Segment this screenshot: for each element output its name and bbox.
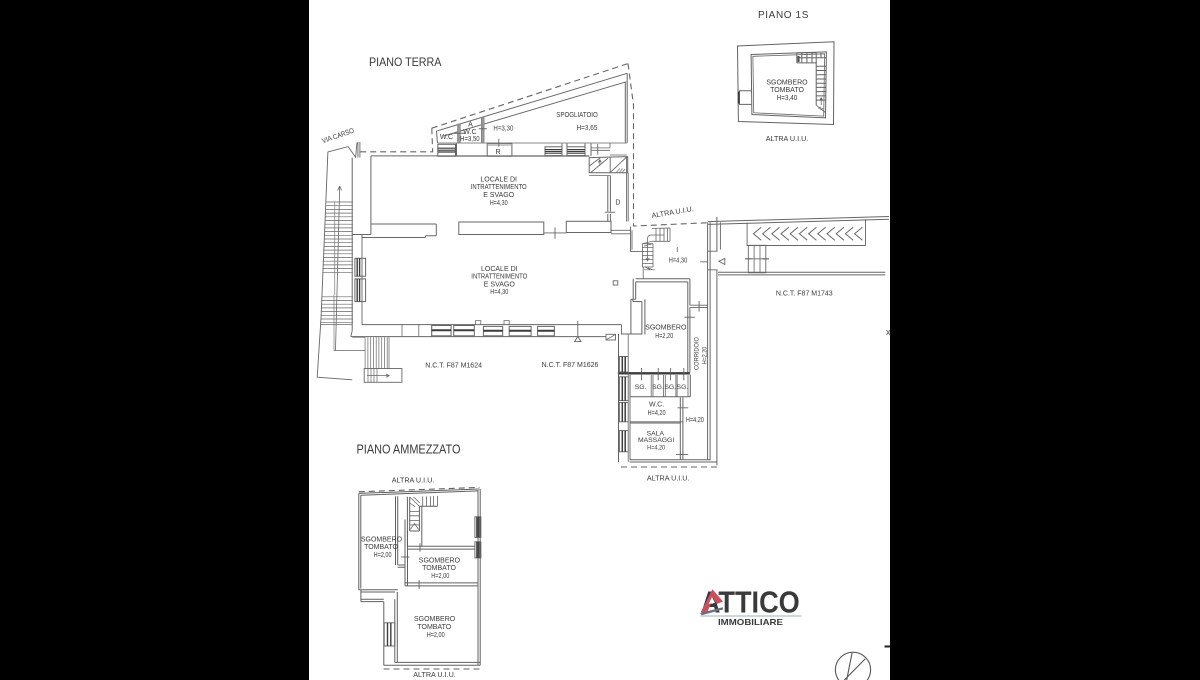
svg-text:ALTRA U.I.U.: ALTRA U.I.U. <box>651 204 695 220</box>
svg-text:LOCALE DI: LOCALE DI <box>481 266 518 273</box>
svg-text:SGOMBERO: SGOMBERO <box>645 324 687 331</box>
svg-text:CORRIDOIO: CORRIDOIO <box>693 337 700 370</box>
svg-text:H=4,20: H=4,20 <box>647 445 665 452</box>
svg-text:VIA CARSO: VIA CARSO <box>321 125 356 145</box>
svg-text:IMMOBILIARE: IMMOBILIARE <box>718 618 784 627</box>
svg-text:W.C: W.C <box>463 129 476 136</box>
svg-text:SGOMBERO: SGOMBERO <box>361 536 403 543</box>
svg-text:INTRATTENIMENTO: INTRATTENIMENTO <box>471 274 527 281</box>
svg-text:H=3,40: H=3,40 <box>777 95 798 102</box>
svg-text:INTRATTENIMENTO: INTRATTENIMENTO <box>471 184 527 191</box>
svg-text:SGOMBERO: SGOMBERO <box>419 557 461 564</box>
svg-text:ALTRA U.I.U.: ALTRA U.I.U. <box>392 476 435 485</box>
svg-text:SGOMBERO: SGOMBERO <box>414 616 456 623</box>
svg-text:H=2,00: H=2,00 <box>374 552 392 559</box>
svg-text:W.C: W.C <box>440 134 453 141</box>
svg-text:N.C.T. F87 M1626: N.C.T. F87 M1626 <box>542 362 599 369</box>
svg-text:H=4,30: H=4,30 <box>490 200 508 207</box>
svg-text:TOMBATO: TOMBATO <box>422 565 456 572</box>
svg-text:ALTRA U.I.U.: ALTRA U.I.U. <box>766 134 809 143</box>
svg-text:H=2,20: H=2,20 <box>701 347 708 365</box>
svg-text:TOMBATO: TOMBATO <box>770 87 804 94</box>
svg-text:H=2,20: H=2,20 <box>655 333 673 340</box>
svg-text:H=3,65: H=3,65 <box>577 123 598 132</box>
svg-text:MASSAGGI: MASSAGGI <box>638 437 674 444</box>
svg-text:PIANO 1S: PIANO 1S <box>758 10 809 21</box>
svg-text:SG.: SG. <box>664 384 676 391</box>
svg-text:ALTRA U.I.U.: ALTRA U.I.U. <box>647 474 690 483</box>
svg-text:SG.: SG. <box>652 384 664 391</box>
svg-text:E SVAGO: E SVAGO <box>483 192 515 199</box>
svg-text:E SVAGO: E SVAGO <box>484 281 516 288</box>
svg-text:I: I <box>676 247 678 254</box>
svg-text:TOMBATO: TOMBATO <box>417 624 451 631</box>
svg-text:TOMBATO: TOMBATO <box>364 544 398 551</box>
svg-text:ALTRA U.I.U.: ALTRA U.I.U. <box>413 670 456 679</box>
svg-text:LOCALE DI: LOCALE DI <box>480 176 517 183</box>
svg-text:SG.: SG. <box>635 384 647 391</box>
svg-text:H=4,30: H=4,30 <box>669 257 688 264</box>
svg-text:D: D <box>615 200 620 207</box>
svg-text:PIANO TERRA: PIANO TERRA <box>369 57 442 69</box>
svg-text:H=4,20: H=4,20 <box>686 417 704 424</box>
svg-text:H=2,00: H=2,00 <box>431 573 449 580</box>
svg-text:H=3,30: H=3,30 <box>493 123 513 132</box>
svg-text:A: A <box>468 122 473 129</box>
svg-text:N.C.T. F87 M1743: N.C.T. F87 M1743 <box>776 291 833 298</box>
svg-text:N.C.T. F87 M1624: N.C.T. F87 M1624 <box>425 363 482 370</box>
svg-text:SGOMBERO: SGOMBERO <box>766 80 808 87</box>
svg-text:H=4,20: H=4,20 <box>648 410 666 417</box>
svg-text:R: R <box>496 149 501 156</box>
svg-text:W.C.: W.C. <box>649 402 664 409</box>
svg-text:SPOGLIATOIO: SPOGLIATOIO <box>556 110 598 119</box>
svg-text:PIANO AMMEZZATO: PIANO AMMEZZATO <box>357 442 461 456</box>
svg-text:H=4,30: H=4,30 <box>490 289 508 296</box>
svg-text:H=2,00: H=2,00 <box>427 632 445 639</box>
svg-text:SG.: SG. <box>677 384 689 391</box>
svg-text:H=3,50: H=3,50 <box>460 136 480 143</box>
